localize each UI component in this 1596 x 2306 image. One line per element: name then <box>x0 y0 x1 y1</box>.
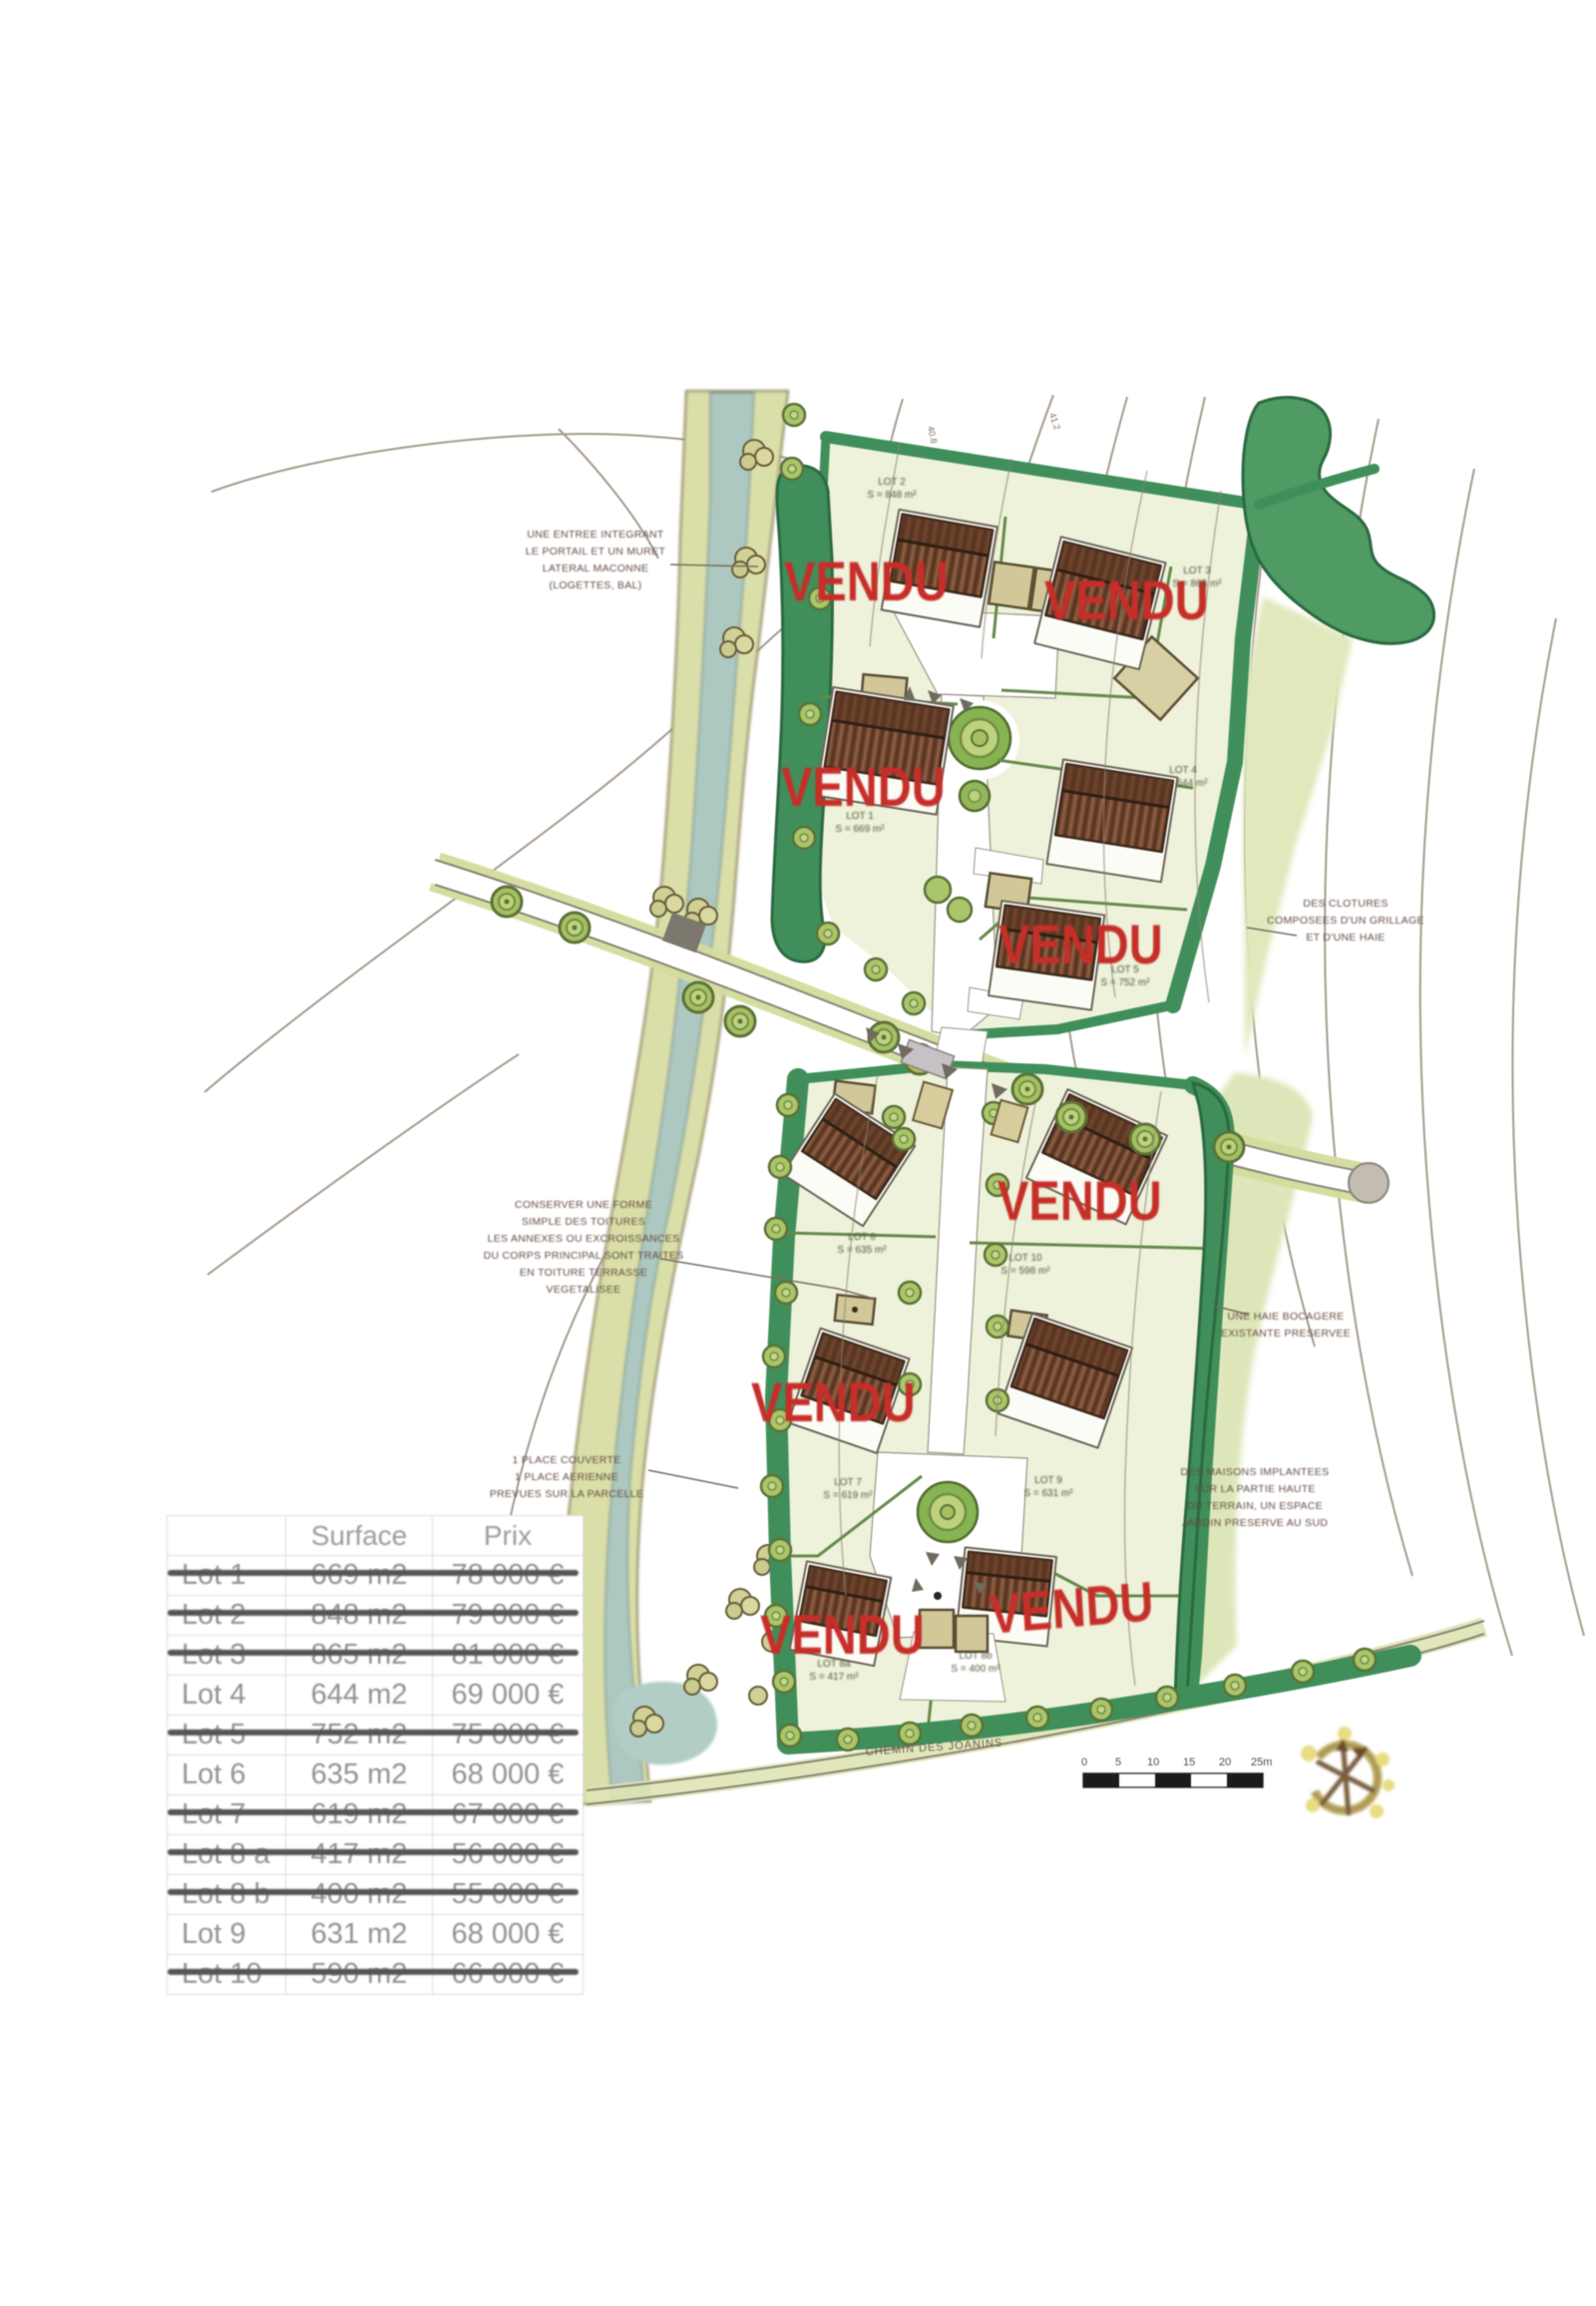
svg-text:20: 20 <box>1219 1756 1231 1768</box>
svg-text:15: 15 <box>1183 1756 1195 1768</box>
svg-text:25m: 25m <box>1251 1756 1272 1768</box>
svg-text:5: 5 <box>1115 1756 1121 1768</box>
svg-text:0: 0 <box>1081 1756 1087 1768</box>
svg-text:10: 10 <box>1147 1756 1159 1768</box>
